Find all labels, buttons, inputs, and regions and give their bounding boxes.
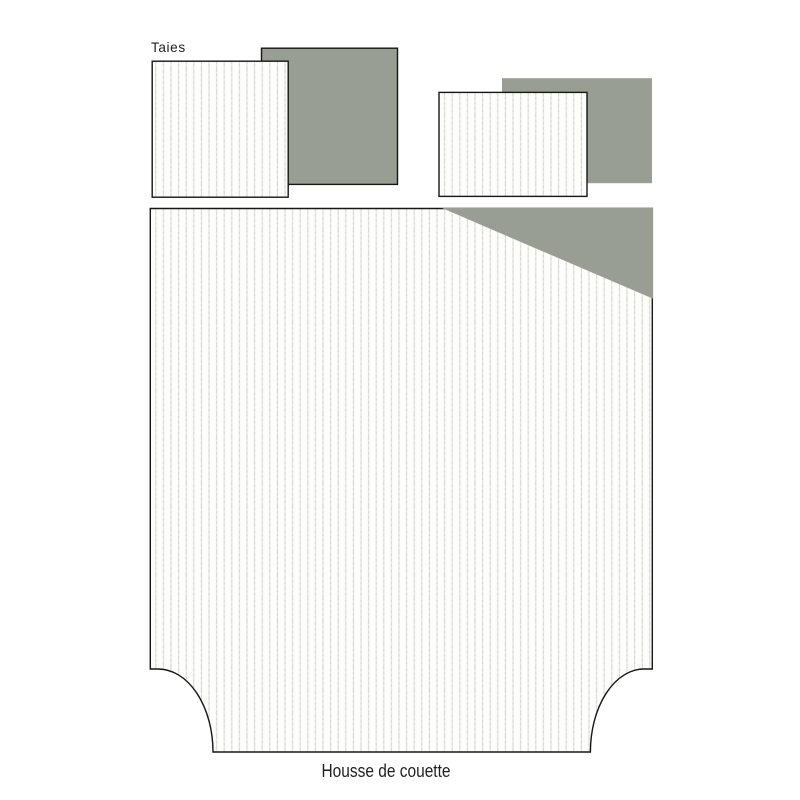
svg-text:Taies: Taies [151,40,186,55]
svg-text:Housse de couette: Housse de couette [322,761,451,781]
